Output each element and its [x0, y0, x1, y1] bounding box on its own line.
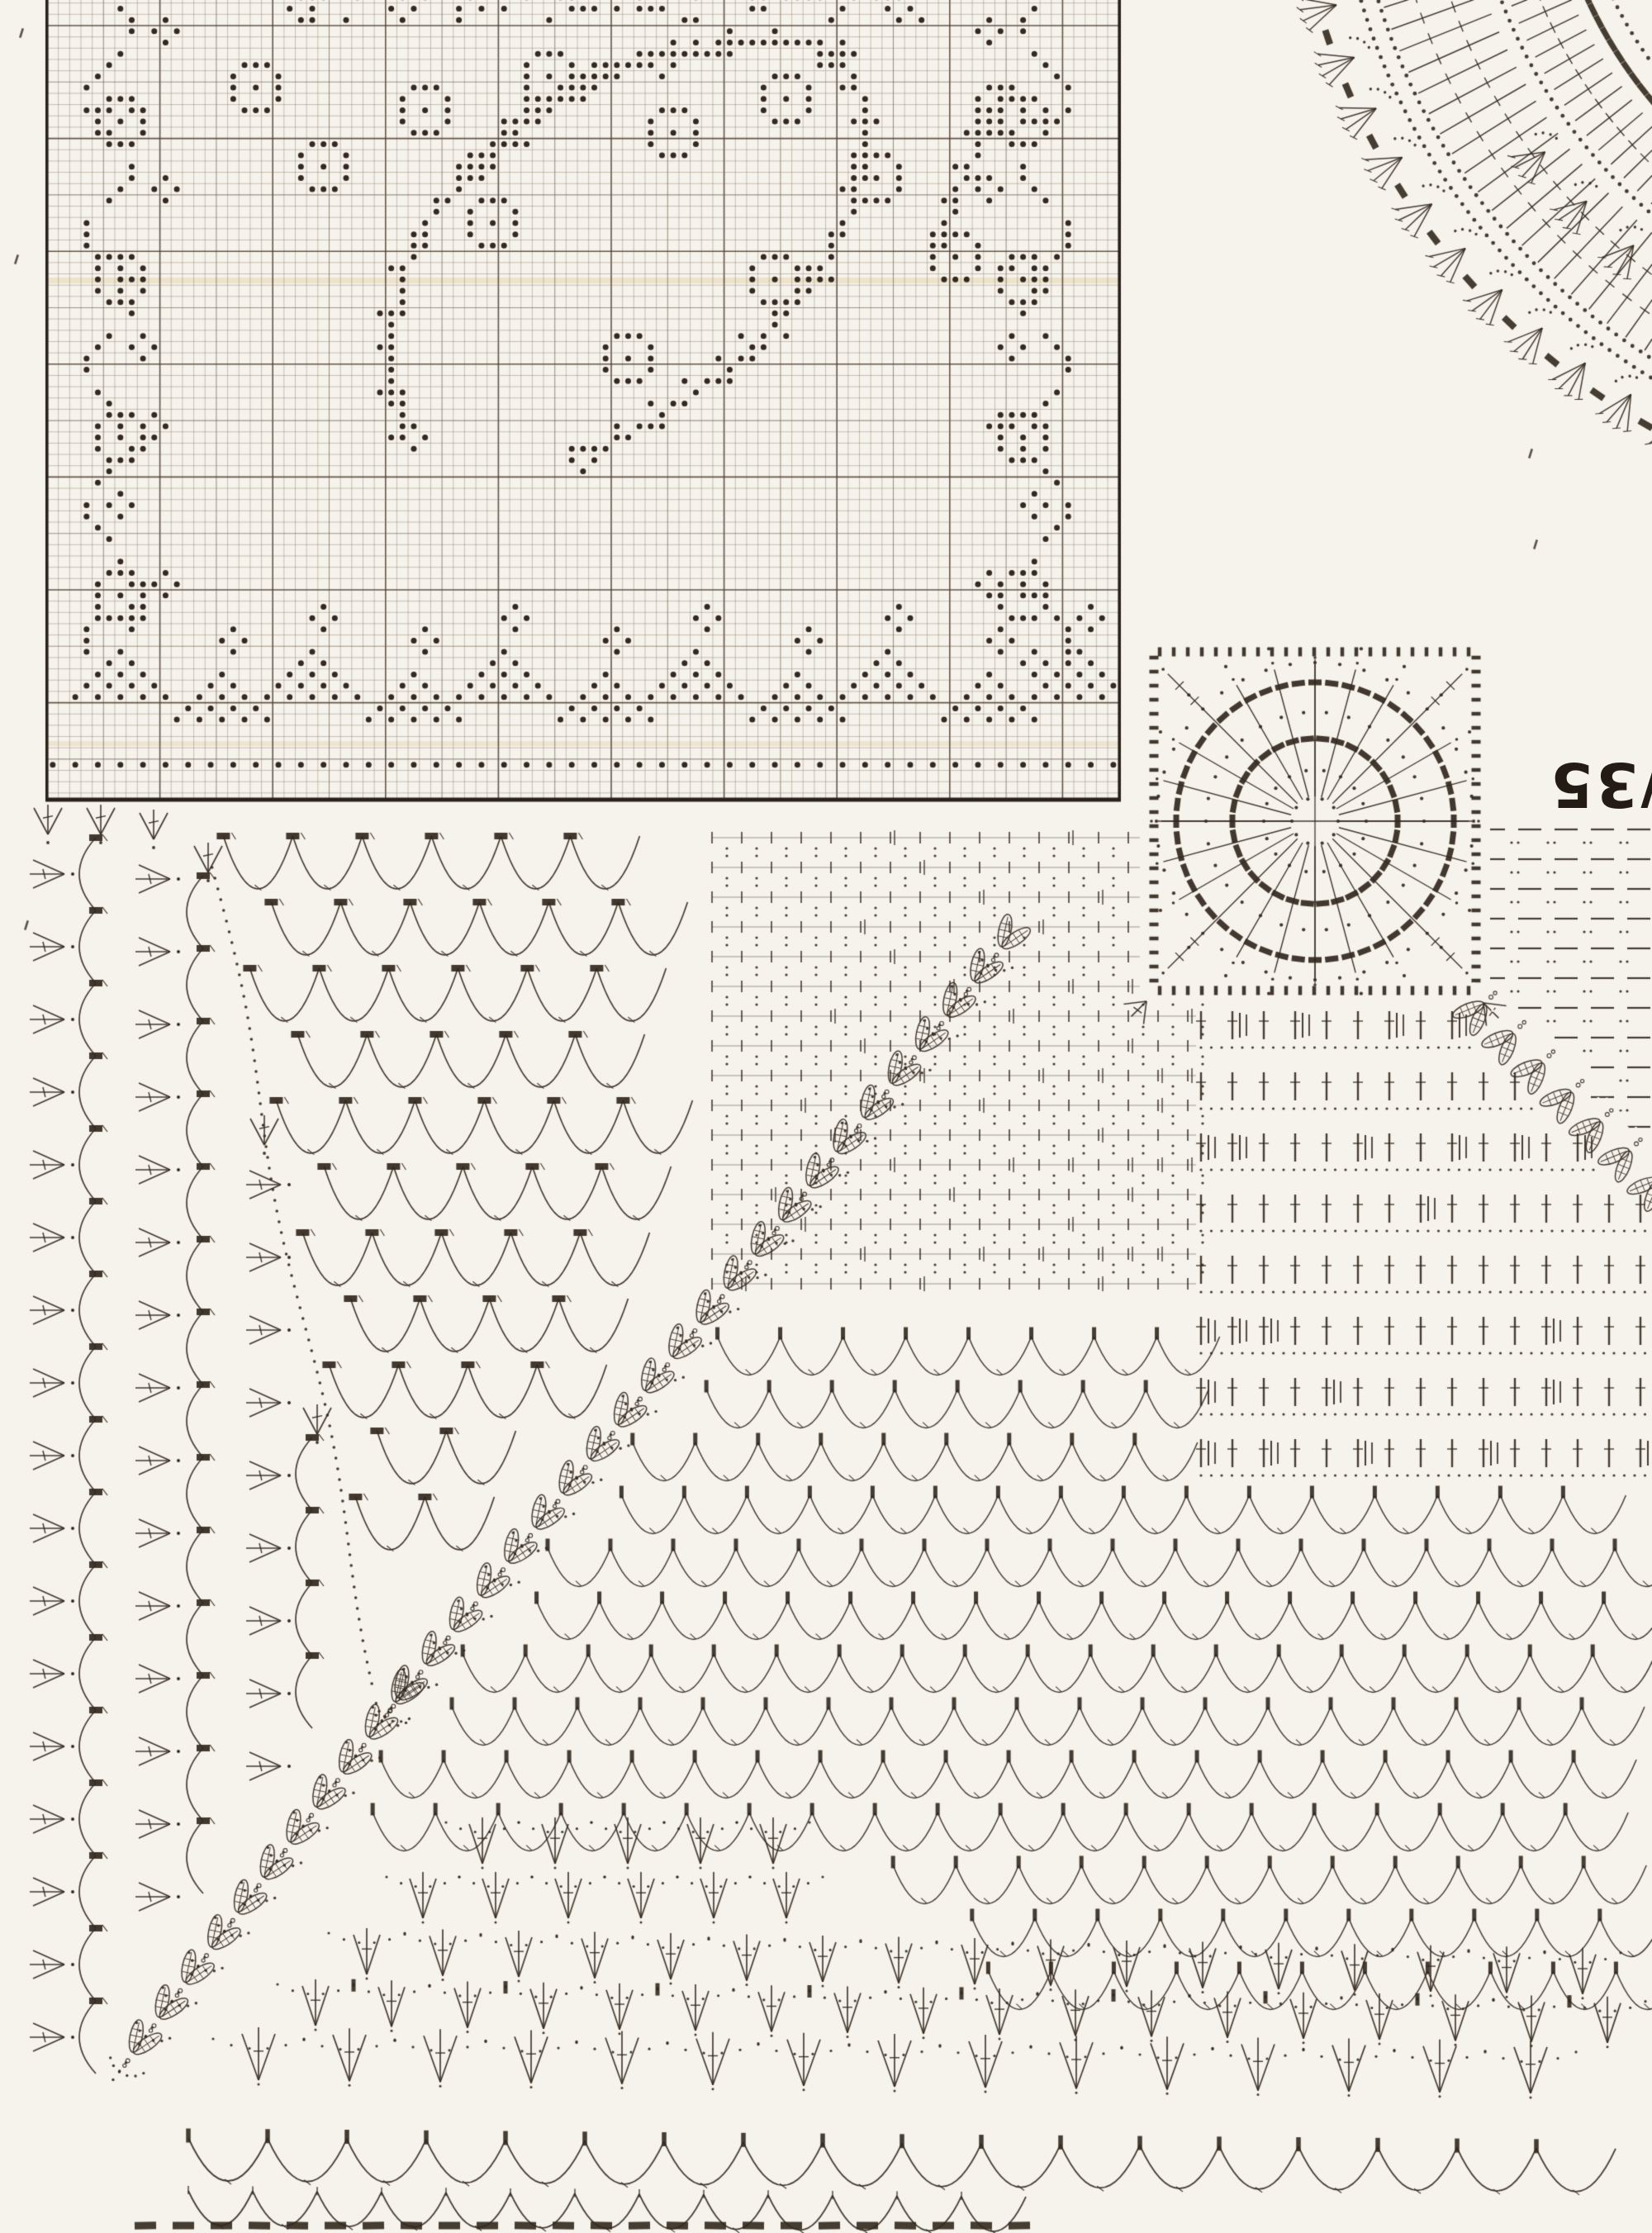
scanned-crochet-pattern-page: 5/35	[0, 0, 1652, 2233]
pattern-number-label: 5/35	[1533, 742, 1652, 815]
pattern-page-canvas	[0, 0, 1652, 2233]
